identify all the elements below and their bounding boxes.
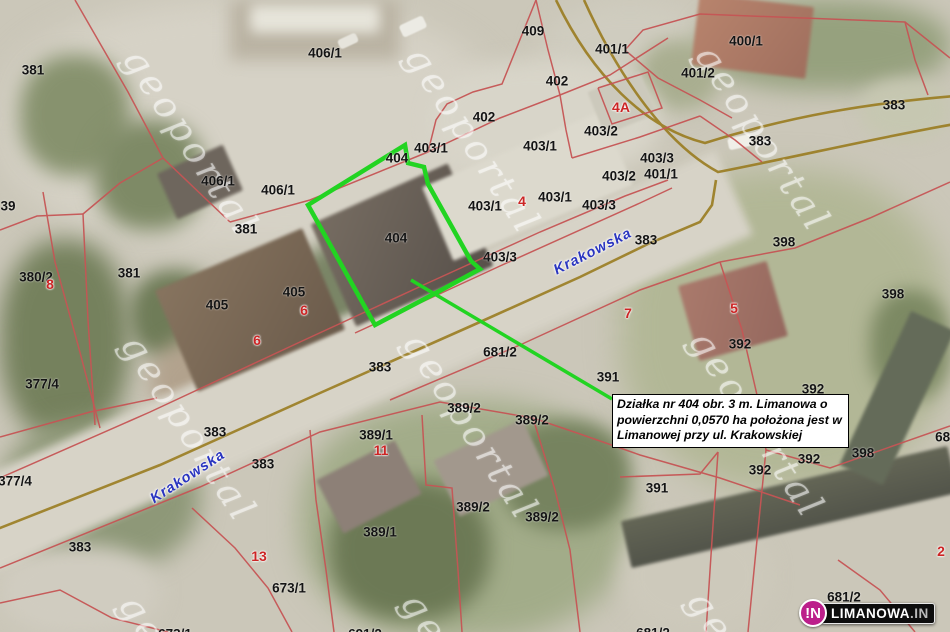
building-number-label: 5	[730, 301, 738, 315]
parcel-number-label: 398	[852, 446, 875, 460]
building-roof-405	[155, 228, 345, 392]
parcel-number-label: 403/1	[538, 190, 572, 204]
parcel-number-label: 402	[473, 110, 496, 124]
cadastral-lines-layer	[0, 0, 950, 632]
building-number-label: 4A	[612, 100, 630, 114]
parcel-number-label: 377/4	[25, 377, 59, 391]
parcel-number-label: 403/3	[582, 198, 616, 212]
building-number-label: 2	[937, 544, 945, 558]
parcel-number-label: 381	[22, 63, 45, 77]
building-number-label: 6	[253, 333, 261, 347]
parcel-number-label: 403/2	[584, 124, 618, 138]
parcel-number-label: 400/1	[729, 34, 763, 48]
parcel-number-label: 403/1	[523, 139, 557, 153]
parcel-boundaries	[0, 0, 950, 632]
parcel-number-label: 391	[646, 481, 669, 495]
parcel-number-label: 381	[235, 222, 258, 236]
parcel-number-label: 39	[0, 199, 15, 213]
parcel-number-label: 681/2	[636, 626, 670, 632]
parcel-number-label: 681/2	[935, 430, 950, 444]
building-number-label: 13	[251, 549, 267, 563]
logo-badge-icon: !N	[799, 599, 827, 627]
parcel-number-label: 405	[283, 285, 306, 299]
parcel-number-label: 383	[252, 457, 275, 471]
parcel-number-label: 389/2	[447, 401, 481, 415]
parcel-number-label: 383	[749, 134, 772, 148]
parcel-number-label: 389/2	[525, 510, 559, 524]
parcel-number-label: 383	[883, 98, 906, 112]
annotation-line-3: Limanowej przy ul. Krakowskiej	[617, 428, 844, 444]
cadastral-map-viewport[interactable]: geoportalgeoportalgeoportalgeoportalgeop…	[0, 0, 950, 632]
annotation-line-2: powierzchni 0,0570 ha położona jest w	[617, 413, 844, 429]
parcel-number-label: 377/4	[0, 474, 32, 488]
parcel-number-label: 389/2	[515, 413, 549, 427]
parcel-number-label: 383	[204, 425, 227, 439]
parcel-number-label: 383	[635, 233, 658, 247]
parcel-number-label: 389/1	[363, 525, 397, 539]
parcel-number-label: 691/2	[348, 627, 382, 632]
building-number-label: 4	[518, 194, 526, 208]
parcel-number-label: 381	[118, 266, 141, 280]
limanowa-in-logo[interactable]: !N LIMANOWA.IN	[799, 598, 935, 628]
parcel-annotation-box: Działka nr 404 obr. 3 m. Limanowa o powi…	[612, 394, 849, 448]
geoportal-watermark: geoportal	[112, 326, 266, 531]
parcel-number-label: 404	[385, 231, 408, 245]
parcel-number-label: 402	[546, 74, 569, 88]
parcel-number-label: 398	[773, 235, 796, 249]
building-number-label: 8	[46, 277, 54, 291]
parcel-number-label: 391	[597, 370, 620, 384]
parcel-number-label: 389/2	[456, 500, 490, 514]
parcel-number-label: 404	[386, 151, 409, 165]
parcel-number-label: 401/1	[595, 42, 629, 56]
geoportal-watermark: geoportal	[114, 40, 268, 245]
parcel-number-label: 673/1	[158, 627, 192, 632]
parcel-number-label: 401/2	[681, 66, 715, 80]
parcel-number-label: 392	[729, 337, 752, 351]
building-number-label: 6	[300, 303, 308, 317]
parcel-number-label: 403/3	[640, 151, 674, 165]
parcel-number-label: 403/3	[483, 250, 517, 264]
parcel-number-label: 409	[522, 24, 545, 38]
street-name-label: Krakowska	[148, 448, 228, 507]
annotation-line-1: Działka nr 404 obr. 3 m. Limanowa o	[617, 397, 844, 413]
parcel-number-label: 392	[798, 452, 821, 466]
parcel-number-label: 403/2	[602, 169, 636, 183]
logo-wordmark: LIMANOWA.IN	[821, 603, 935, 624]
parcel-number-label: 406/1	[261, 183, 295, 197]
parcel-number-label: 401/1	[644, 167, 678, 181]
parcel-number-label: 392	[749, 463, 772, 477]
street-name-label: Krakowska	[552, 226, 635, 278]
annotation-pointer-line	[411, 280, 612, 399]
logo-tld: .IN	[910, 606, 929, 621]
parcel-number-label: 406/1	[308, 46, 342, 60]
building-number-label: 7	[624, 306, 632, 320]
parcel-number-label: 681/2	[483, 345, 517, 359]
parcel-number-label: 383	[69, 540, 92, 554]
geoportal-watermark: geoportal	[392, 584, 546, 632]
geoportal-watermark: geoportal	[110, 586, 264, 632]
parcel-number-label: 673/1	[272, 581, 306, 595]
parcel-number-label: 403/1	[414, 141, 448, 155]
building-number-label: 11	[374, 443, 389, 457]
logo-name: LIMANOWA	[831, 606, 910, 621]
parcel-number-label: 406/1	[201, 174, 235, 188]
parcel-number-label: 383	[369, 360, 392, 374]
parcel-number-label: 405	[206, 298, 229, 312]
parcel-number-label: 398	[882, 287, 905, 301]
parcel-number-label: 389/1	[359, 428, 393, 442]
highlight-layer	[0, 0, 950, 632]
parcel-number-label: 403/1	[468, 199, 502, 213]
